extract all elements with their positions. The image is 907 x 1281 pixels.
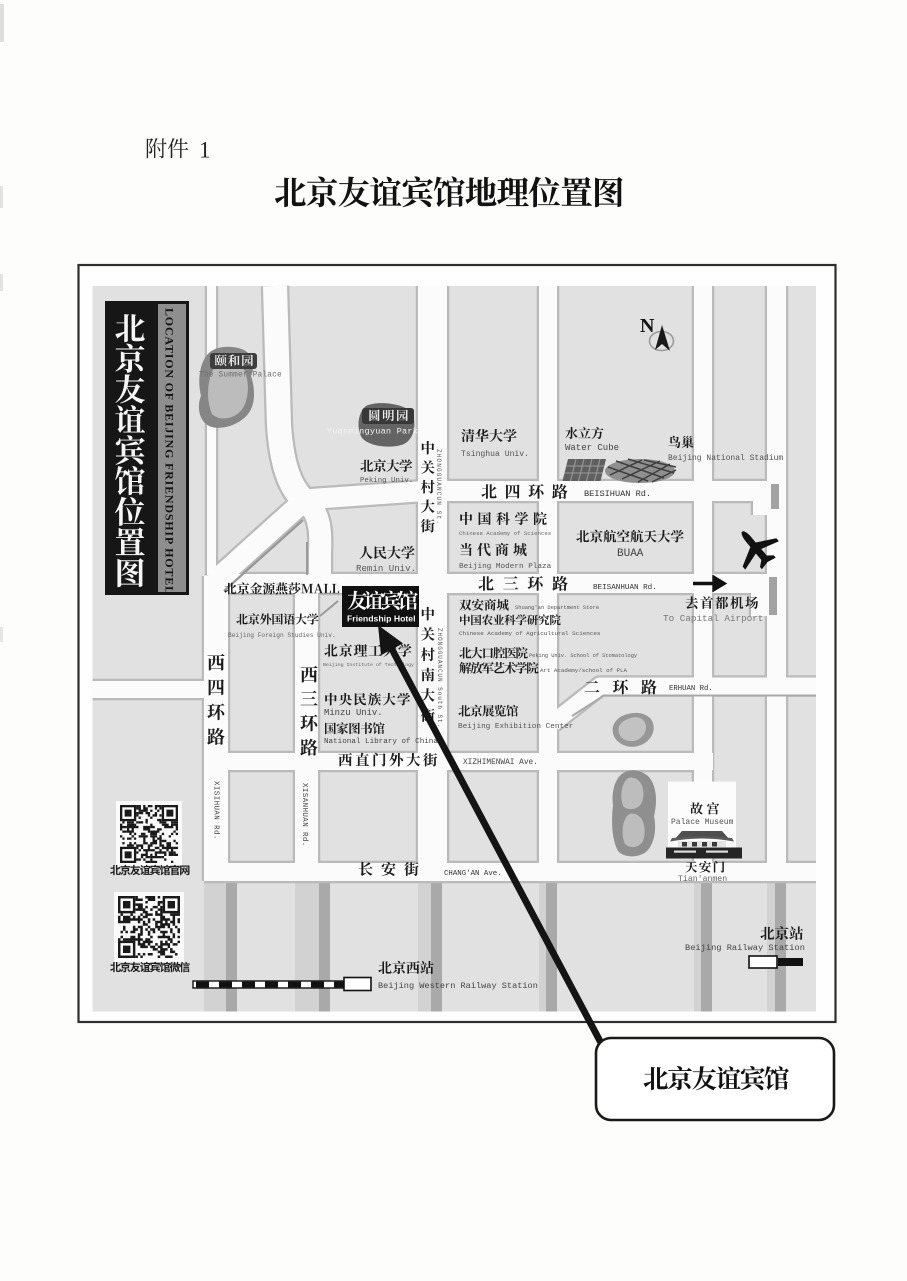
svg-text:LOCATION OF BEIJING FRIENDSHIP: LOCATION OF BEIJING FRIENDSHIP HOTEL [163, 308, 177, 595]
svg-text:National Library of China: National Library of China [324, 738, 438, 746]
svg-text:1: 1 [199, 138, 211, 163]
svg-text:Shuang'an Department Store: Shuang'an Department Store [515, 605, 599, 611]
svg-text:Chinese Academy of Agricultura: Chinese Academy of Agricultural Sciences [459, 630, 601, 637]
svg-text:BEISANHUAN Rd.: BEISANHUAN Rd. [593, 584, 657, 592]
svg-text:N: N [640, 315, 655, 337]
svg-text:Beijing Foreign Studies Univ.: Beijing Foreign Studies Univ. [228, 632, 336, 639]
svg-text:Peking Univ. School of Stomato: Peking Univ. School of Stomatology [529, 653, 637, 659]
svg-text:Chinese Academy of Sciences: Chinese Academy of Sciences [459, 530, 551, 537]
svg-text:CHANG'AN Ave.: CHANG'AN Ave. [444, 870, 502, 878]
svg-text:ZHONGGUANCUN South St.: ZHONGGUANCUN South St. [436, 628, 443, 728]
svg-text:Palace Museum: Palace Museum [671, 818, 734, 827]
svg-text:Beijing Western Railway Statio: Beijing Western Railway Station [378, 981, 538, 991]
svg-text:Beijing Modern Plaza: Beijing Modern Plaza [459, 563, 552, 571]
svg-text:Art Academy/school of PLA: Art Academy/school of PLA [540, 667, 627, 674]
svg-text:Beijing National Stadium: Beijing National Stadium [668, 454, 783, 463]
svg-text:The Summer Palace: The Summer Palace [199, 372, 282, 380]
svg-text:Water Cube: Water Cube [565, 443, 619, 453]
svg-text:Beijing Railway Station: Beijing Railway Station [685, 943, 805, 953]
svg-text:To Capital Airport: To Capital Airport [663, 613, 763, 624]
svg-text:Minzu Univ.: Minzu Univ. [324, 708, 383, 718]
svg-text:Friendship Hotel: Friendship Hotel [347, 614, 416, 624]
svg-text:Yuanmingyuan Park: Yuanmingyuan Park [327, 427, 418, 437]
svg-text:Beijing Exhibition Center: Beijing Exhibition Center [458, 723, 573, 731]
svg-text:XIZHIMENWAI Ave.: XIZHIMENWAI Ave. [463, 759, 538, 767]
svg-text:Tsinghua Univ.: Tsinghua Univ. [461, 450, 529, 459]
svg-text:BEISIHUAN Rd.: BEISIHUAN Rd. [584, 489, 651, 499]
svg-text:XISIHUAN Rd.: XISIHUAN Rd. [212, 781, 220, 840]
svg-text:ZHONGGUANCUN St.: ZHONGGUANCUN St. [435, 449, 442, 525]
svg-text:XISANHUAN Rd.: XISANHUAN Rd. [300, 783, 308, 847]
svg-text:Peking Univ.: Peking Univ. [360, 477, 413, 485]
svg-text:Tian'anmen: Tian'anmen [678, 874, 727, 884]
svg-text:BUAA: BUAA [617, 548, 644, 560]
svg-text:ERHUAN Rd.: ERHUAN Rd. [669, 685, 713, 693]
svg-text:Remin Univ.: Remin Univ. [356, 563, 416, 574]
